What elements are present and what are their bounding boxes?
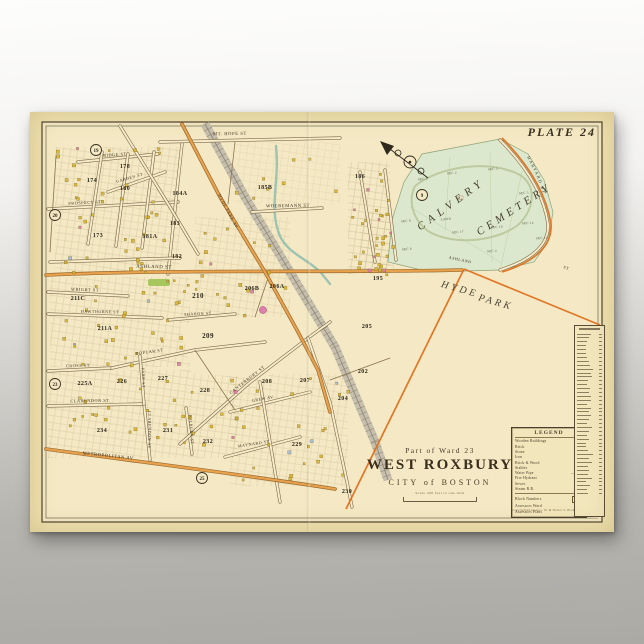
building-marker (180, 336, 183, 339)
building-marker (252, 197, 254, 199)
building-marker (226, 228, 228, 230)
street-label: WOEREMANN ST (266, 203, 310, 209)
building-marker (94, 300, 96, 302)
building-marker (390, 232, 392, 234)
building-marker (167, 280, 169, 282)
building-marker (166, 319, 168, 321)
building-marker (68, 257, 71, 260)
building-marker (74, 345, 76, 347)
cemetery-section-label: SEC 3 (488, 167, 498, 172)
building-marker (105, 340, 108, 343)
building-marker (196, 280, 199, 283)
building-marker (376, 253, 379, 256)
block-number: 230 (342, 489, 352, 495)
building-marker (161, 340, 163, 342)
block-number: 180 (120, 186, 130, 192)
building-marker (142, 291, 145, 294)
map-title: WEST ROXBURY (360, 457, 520, 474)
building-marker (86, 257, 88, 259)
block-number: 229 (292, 442, 302, 448)
block-number: 234 (97, 428, 107, 434)
building-marker (386, 213, 389, 216)
street-label: ASHLAND ST (136, 265, 172, 271)
cemetery-section-label: SEC 4 (487, 249, 497, 254)
legend-footer-label: Block Numbers (515, 497, 542, 502)
building-marker (381, 242, 384, 245)
block-number: 226 (117, 379, 127, 385)
building-marker (72, 164, 75, 167)
legend-footer-item: Block Numbers612 (515, 496, 583, 503)
building-marker (288, 451, 291, 454)
building-marker (177, 362, 180, 365)
building-marker (335, 190, 338, 193)
legend-item-label: Brick (515, 445, 524, 450)
building-marker (183, 290, 185, 292)
building-marker (317, 460, 320, 463)
building-marker (95, 414, 98, 417)
building-marker (303, 463, 305, 465)
block-number: 186 (355, 174, 365, 180)
building-marker (235, 191, 238, 194)
building-marker (155, 213, 158, 216)
building-marker (191, 391, 193, 393)
building-marker (152, 332, 155, 335)
building-marker (239, 283, 242, 286)
building-marker (123, 312, 126, 315)
building-marker (262, 178, 265, 181)
block-number: 232 (203, 439, 213, 445)
building-marker (383, 269, 386, 272)
block-number: 205 (362, 324, 372, 330)
building-marker (157, 148, 160, 151)
block-number: 185B (258, 185, 273, 191)
building-marker (227, 304, 230, 307)
block-number: 206B (245, 286, 260, 292)
building-marker (232, 436, 235, 439)
building-marker (124, 357, 126, 359)
block-number: 195 (373, 276, 383, 282)
building-marker (154, 292, 156, 294)
building-marker (124, 238, 126, 240)
building-marker (380, 180, 383, 183)
building-marker (256, 390, 259, 393)
building-marker (385, 235, 387, 237)
building-marker (183, 442, 185, 444)
poster: MT. HOPE STRIDGE STPROSPECT STGARDEN STW… (30, 112, 614, 532)
building-marker (362, 251, 364, 253)
plate-label: PLATE 24 (478, 125, 596, 140)
building-marker (158, 152, 160, 154)
legend-item-label: Wooden Buildings (515, 439, 546, 444)
building-marker (63, 337, 66, 340)
building-marker (242, 479, 244, 481)
building-marker (242, 426, 245, 429)
building-marker (204, 250, 207, 253)
cemetery-section-label: SEC 5 (519, 191, 529, 196)
building-marker (187, 284, 189, 286)
building-marker (253, 242, 255, 244)
fold-crease (306, 112, 311, 532)
cemetery-section-label: LAWN (441, 217, 452, 222)
building-marker (378, 218, 380, 220)
building-marker (204, 232, 206, 234)
building-marker (134, 149, 137, 152)
street-label: CLARENDON ST (70, 398, 109, 404)
building-marker (139, 388, 141, 390)
legend-divider (515, 493, 583, 494)
block-number: 182 (172, 254, 182, 260)
street-label: CLARENDON AV (147, 411, 152, 449)
building-marker (101, 192, 104, 195)
building-marker (175, 424, 177, 426)
building-marker (386, 255, 389, 258)
block-number: 211C (71, 296, 86, 302)
building-marker (382, 237, 385, 240)
building-marker (78, 178, 81, 181)
building-marker (107, 363, 110, 366)
block-number: 228 (200, 388, 210, 394)
building-marker (353, 209, 355, 211)
block-number: 206A (270, 284, 285, 290)
building-marker (79, 216, 82, 219)
building-marker (236, 417, 238, 419)
building-marker (253, 467, 255, 469)
building-marker (79, 226, 81, 228)
cemetery-section-label: SEC 12 (536, 236, 548, 241)
building-marker (74, 183, 77, 186)
cemetery-section-label: SEC 10 (491, 225, 503, 230)
building-marker (282, 182, 285, 185)
legend-item: Steam R.R.┼┼┼ (515, 487, 583, 492)
building-marker (347, 390, 350, 393)
lot-texture (230, 374, 348, 486)
building-marker (160, 338, 162, 340)
building-marker (386, 274, 388, 276)
building-marker (122, 315, 125, 318)
building-marker (173, 280, 175, 282)
brick-landmark (260, 307, 267, 314)
building-marker (108, 150, 110, 152)
building-marker (151, 212, 153, 214)
legend-header: LEGEND (515, 430, 583, 438)
legend-item-label: Stone (515, 450, 525, 455)
building-marker (268, 244, 271, 247)
building-marker (65, 319, 68, 322)
building-marker (65, 179, 68, 182)
building-marker (380, 214, 382, 216)
building-marker (214, 238, 217, 241)
building-marker (175, 302, 178, 305)
block-number: 173 (93, 233, 103, 239)
backdrop: MT. HOPE STRIDGE STPROSPECT STGARDEN STW… (0, 0, 644, 644)
building-marker (240, 409, 243, 412)
building-marker (145, 271, 147, 273)
building-marker (134, 428, 137, 431)
building-marker (361, 222, 363, 224)
building-marker (320, 455, 323, 458)
cemetery-section-label: SEC 8 (401, 219, 411, 224)
adjacent-plate-number: 20 (53, 214, 59, 219)
legend-item-label: Brick & Wood (515, 461, 540, 466)
building-marker (368, 269, 371, 272)
building-marker (375, 209, 378, 212)
building-marker (379, 173, 381, 175)
building-marker (56, 150, 59, 153)
adjacent-plate-number: 19 (94, 149, 100, 154)
building-marker (72, 271, 75, 274)
building-marker (289, 474, 292, 477)
title-block: Part of Ward 23 WEST ROXBURY CITY of BOS… (360, 446, 520, 502)
building-marker (210, 425, 213, 428)
building-marker (392, 245, 395, 248)
index-header-line (579, 328, 600, 330)
building-marker (220, 413, 223, 416)
building-marker (216, 293, 218, 295)
building-marker (342, 474, 344, 476)
building-marker (376, 245, 378, 247)
cemetery-section-label: SEC 6 (402, 247, 412, 252)
building-marker (156, 436, 159, 439)
building-marker (164, 423, 167, 426)
street-label: MT. HOPE ST (213, 131, 247, 137)
building-marker (111, 338, 114, 341)
building-marker (64, 261, 67, 264)
street-index (574, 325, 605, 517)
cemetery-section-label: SEC 17 (452, 230, 464, 235)
building-marker (69, 425, 71, 427)
building-marker (243, 314, 246, 317)
street-label: PARK ST (141, 368, 147, 388)
building-marker (365, 219, 367, 221)
building-marker (358, 267, 361, 270)
building-marker (115, 326, 118, 329)
building-marker (322, 429, 325, 432)
building-marker (195, 288, 197, 290)
building-marker (378, 263, 381, 266)
block-number: 208 (262, 379, 272, 385)
building-marker (104, 418, 107, 421)
block-number: 174 (87, 178, 97, 184)
building-marker (210, 263, 213, 266)
block-number: 202 (358, 369, 368, 375)
building-marker (257, 407, 260, 410)
building-marker (163, 239, 166, 242)
cemetery-section-label: SEC 14 (522, 221, 534, 226)
building-marker (387, 199, 389, 201)
building-marker (152, 201, 154, 203)
legend-item-label: Iron (515, 455, 522, 460)
building-marker (76, 147, 78, 149)
building-marker (136, 248, 139, 251)
adjacent-plate-number: 25 (200, 477, 206, 482)
map-subtitle: CITY of BOSTON (360, 478, 520, 487)
block-number: 184A (173, 191, 188, 197)
building-marker (92, 214, 94, 216)
building-marker (289, 478, 292, 481)
block-number: 225A (78, 381, 93, 387)
building-marker (379, 269, 382, 272)
scale-note: Scale 200 feet to one inch (360, 491, 520, 495)
legend-item-label: Steam R.R. (515, 487, 534, 492)
building-marker (230, 379, 233, 382)
ward-line: Part of Ward 23 (360, 446, 520, 455)
building-marker (367, 188, 370, 191)
building-marker (73, 418, 76, 421)
building-marker (375, 267, 378, 270)
street-label: HAWTHORNE ST (81, 309, 119, 315)
block-number: 181A (143, 234, 158, 240)
building-marker (354, 256, 356, 258)
block-number: 231 (163, 428, 173, 434)
building-marker (147, 300, 150, 303)
block-number: 227 (158, 376, 168, 382)
block-number: 178 (120, 164, 130, 170)
building-marker (182, 415, 185, 418)
street-label: CROSS ST (66, 363, 90, 369)
building-marker (201, 275, 204, 278)
building-marker (180, 346, 183, 349)
building-marker (297, 425, 300, 428)
lot-texture (235, 142, 340, 204)
building-marker (120, 198, 123, 201)
building-marker (292, 159, 295, 162)
building-marker (84, 220, 87, 223)
building-marker (92, 413, 94, 415)
building-marker (129, 431, 131, 433)
building-marker (376, 237, 378, 239)
block-number: 210 (192, 292, 204, 300)
building-marker (56, 155, 59, 158)
building-marker (358, 262, 361, 265)
building-marker (130, 364, 133, 367)
scale-bar (403, 496, 477, 502)
block-number: 209 (202, 332, 214, 340)
adjacent-plate-number: 23 (53, 383, 59, 388)
building-marker (224, 297, 226, 299)
building-marker (82, 415, 84, 417)
block-number: 211A (98, 326, 113, 332)
building-marker (373, 256, 375, 258)
building-marker (268, 271, 271, 274)
building-marker (291, 393, 294, 396)
building-marker (336, 382, 338, 384)
block-number: 183 (170, 221, 180, 227)
cemetery-section-label: SEC 2 (447, 171, 457, 176)
building-marker (125, 250, 128, 253)
street-label: WRIGHT ST (71, 287, 99, 293)
building-marker (199, 261, 202, 264)
index-row (577, 492, 602, 496)
building-marker (131, 239, 134, 242)
building-marker (147, 216, 149, 218)
building-marker (136, 258, 139, 261)
building-marker (173, 399, 176, 402)
building-marker (352, 216, 354, 218)
building-marker (107, 406, 110, 409)
building-marker (129, 267, 132, 270)
block-number: 204 (338, 396, 348, 402)
